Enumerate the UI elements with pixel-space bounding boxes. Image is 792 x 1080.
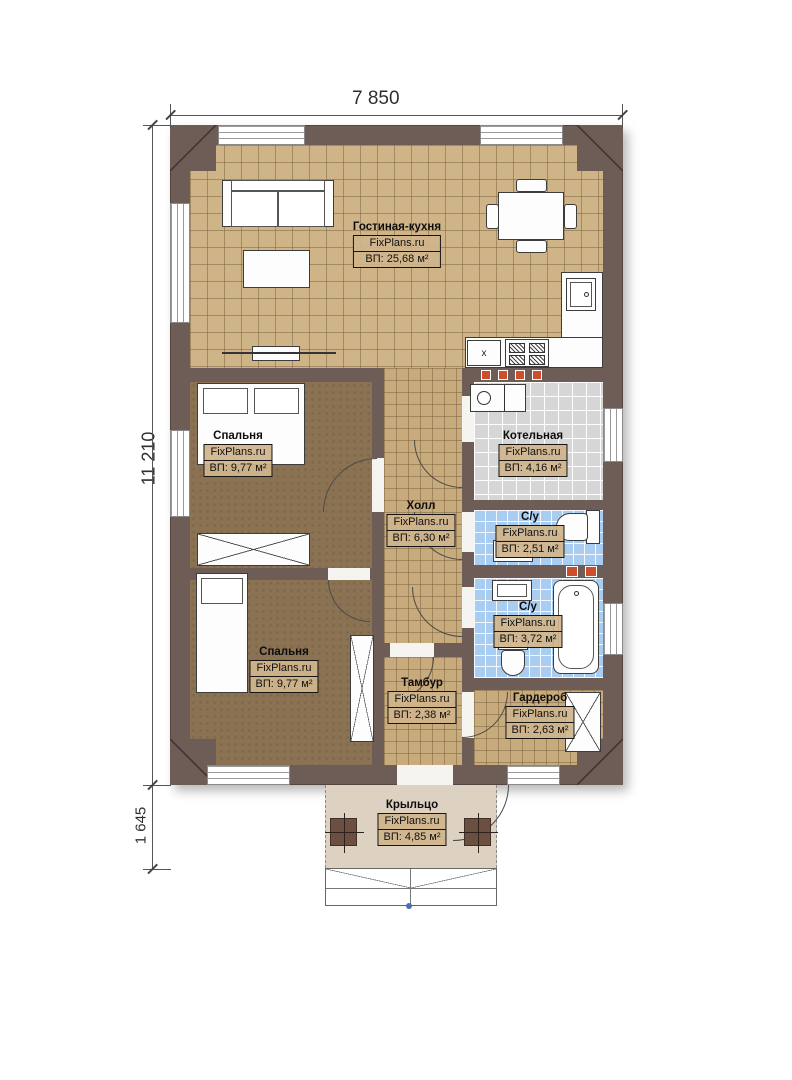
room-brand: FixPlans.ru (495, 525, 564, 542)
room-brand: FixPlans.ru (493, 615, 562, 632)
room-name: Гостиная-кухня (353, 221, 441, 233)
dining-table (498, 192, 564, 240)
window (218, 125, 305, 145)
stove-burner (509, 343, 525, 353)
door-opening-bath-1 (462, 512, 474, 552)
window (170, 430, 190, 517)
room-name: Гардероб (505, 692, 574, 704)
toilet-tank (586, 510, 600, 544)
dining-chair (564, 204, 577, 229)
room-name: Тамбур (387, 677, 456, 689)
bed (196, 573, 248, 693)
room-name: Спальня (203, 430, 272, 442)
porch-steps (325, 868, 497, 906)
stove (505, 339, 549, 367)
boiler-divider (504, 385, 505, 411)
room-area: ВП: 3,72 м² (493, 631, 562, 648)
room-brand: FixPlans.ru (386, 514, 455, 531)
bathtub-basin (558, 585, 594, 669)
sofa (222, 180, 334, 227)
dimension-line-porch (152, 785, 153, 869)
step-marker (406, 903, 412, 909)
room-label-boiler-room: Котельная FixPlans.ru ВП: 4,16 м² (498, 430, 567, 477)
room-label-bathroom-2: С/у FixPlans.ru ВП: 3,72 м² (493, 601, 562, 648)
window (603, 603, 623, 655)
porch-column (330, 818, 357, 846)
room-brand: FixPlans.ru (498, 444, 567, 461)
wardrobe-cabinet (197, 533, 310, 566)
door-opening-bath-2 (462, 587, 474, 628)
room-label-hall: Холл FixPlans.ru ВП: 6,30 м² (386, 500, 455, 547)
vent-block (498, 370, 508, 380)
room-label-wardrobe-room: Гардероб FixPlans.ru ВП: 2,63 м² (505, 692, 574, 739)
room-name: Крыльцо (377, 799, 446, 811)
dining-chair (516, 240, 547, 253)
corner-hatch (577, 125, 623, 171)
window (507, 765, 560, 785)
kitchen-appliance: x (467, 340, 501, 366)
room-area: ВП: 6,30 м² (386, 530, 455, 547)
stove-burner (529, 355, 545, 365)
tv-line (222, 352, 336, 354)
vent-block (515, 370, 525, 380)
room-area: ВП: 25,68 м² (353, 251, 441, 268)
room-label-living-kitchen: Гостиная-кухня FixPlans.ru ВП: 25,68 м² (353, 221, 441, 268)
wall (190, 368, 372, 382)
room-label-bathroom-1: С/у FixPlans.ru ВП: 2,51 м² (495, 511, 564, 558)
corner-hatch (170, 125, 216, 171)
room-area: ВП: 2,63 м² (505, 722, 574, 739)
stove-burner (509, 355, 525, 365)
kitchen-sink-drain (584, 292, 589, 297)
room-brand: FixPlans.ru (203, 444, 272, 461)
room-name: Спальня (249, 646, 318, 658)
sofa-back (231, 180, 325, 191)
room-area: ВП: 9,77 м² (249, 676, 318, 693)
window (480, 125, 563, 145)
door-opening-bedroom-bottom (328, 568, 370, 580)
step-line (326, 869, 411, 888)
sofa-cushion (278, 191, 325, 227)
room-label-bedroom-bottom: Спальня FixPlans.ru ВП: 9,77 м² (249, 646, 318, 693)
room-name: С/у (493, 601, 562, 613)
column-cross (344, 813, 345, 853)
room-brand: FixPlans.ru (377, 813, 446, 830)
kitchen-appliance-mark: x (482, 348, 487, 359)
room-area: ВП: 4,85 м² (377, 829, 446, 846)
vent-block (481, 370, 491, 380)
kitchen-sink (566, 278, 596, 311)
boiler-unit (470, 384, 526, 412)
room-name: С/у (495, 511, 564, 523)
dimension-left-height: 11 210 (138, 432, 159, 486)
room-label-porch: Крыльцо FixPlans.ru ВП: 4,85 м² (377, 799, 446, 846)
room-area: ВП: 2,51 м² (495, 541, 564, 558)
pillow (254, 388, 299, 414)
room-name: Холл (386, 500, 455, 512)
stove-burner (529, 343, 545, 353)
window (603, 408, 623, 462)
witness-line (143, 785, 171, 786)
wall (474, 678, 603, 690)
step-center-line (410, 869, 411, 905)
room-name: Котельная (498, 430, 567, 442)
room-label-vestibule: Тамбур FixPlans.ru ВП: 2,38 м² (387, 677, 456, 724)
bath-sink (492, 580, 532, 601)
pillow (203, 388, 248, 414)
vent-block (585, 566, 597, 577)
toilet-bowl (501, 650, 525, 676)
pillow (201, 578, 243, 604)
window (207, 765, 290, 785)
window (170, 203, 190, 323)
vent-block (532, 370, 542, 380)
wall (474, 565, 603, 578)
porch-column (464, 818, 491, 846)
dimension-top-width: 7 850 (352, 88, 400, 110)
room-brand: FixPlans.ru (505, 706, 574, 723)
step-line (411, 869, 496, 888)
dimension-line-top (170, 115, 623, 116)
boiler-dial (477, 391, 491, 405)
witness-line (143, 125, 171, 126)
column-cross (478, 813, 479, 853)
room-area: ВП: 4,16 м² (498, 460, 567, 477)
room-brand: FixPlans.ru (387, 691, 456, 708)
wall (474, 500, 603, 510)
bathtub-drain (574, 591, 579, 596)
floor-plan-canvas: 7 850 11 210 1 645 (0, 0, 792, 1080)
sofa-cushion (231, 191, 278, 227)
dimension-line-left (152, 125, 153, 785)
room-brand: FixPlans.ru (353, 235, 441, 252)
bath-sink-basin (497, 584, 527, 597)
coffee-table (243, 250, 310, 288)
step-divider (326, 888, 496, 889)
wardrobe-cabinet (350, 635, 374, 742)
dining-chair (516, 179, 547, 192)
entrance-opening (397, 765, 453, 785)
dimension-porch-height: 1 645 (132, 807, 149, 845)
room-area: ВП: 2,38 м² (387, 707, 456, 724)
vent-block (566, 566, 578, 577)
room-brand: FixPlans.ru (249, 660, 318, 677)
room-area: ВП: 9,77 м² (203, 460, 272, 477)
witness-line (143, 869, 171, 870)
door-opening-vestibule (390, 643, 434, 657)
room-label-bedroom-top: Спальня FixPlans.ru ВП: 9,77 м² (203, 430, 272, 477)
